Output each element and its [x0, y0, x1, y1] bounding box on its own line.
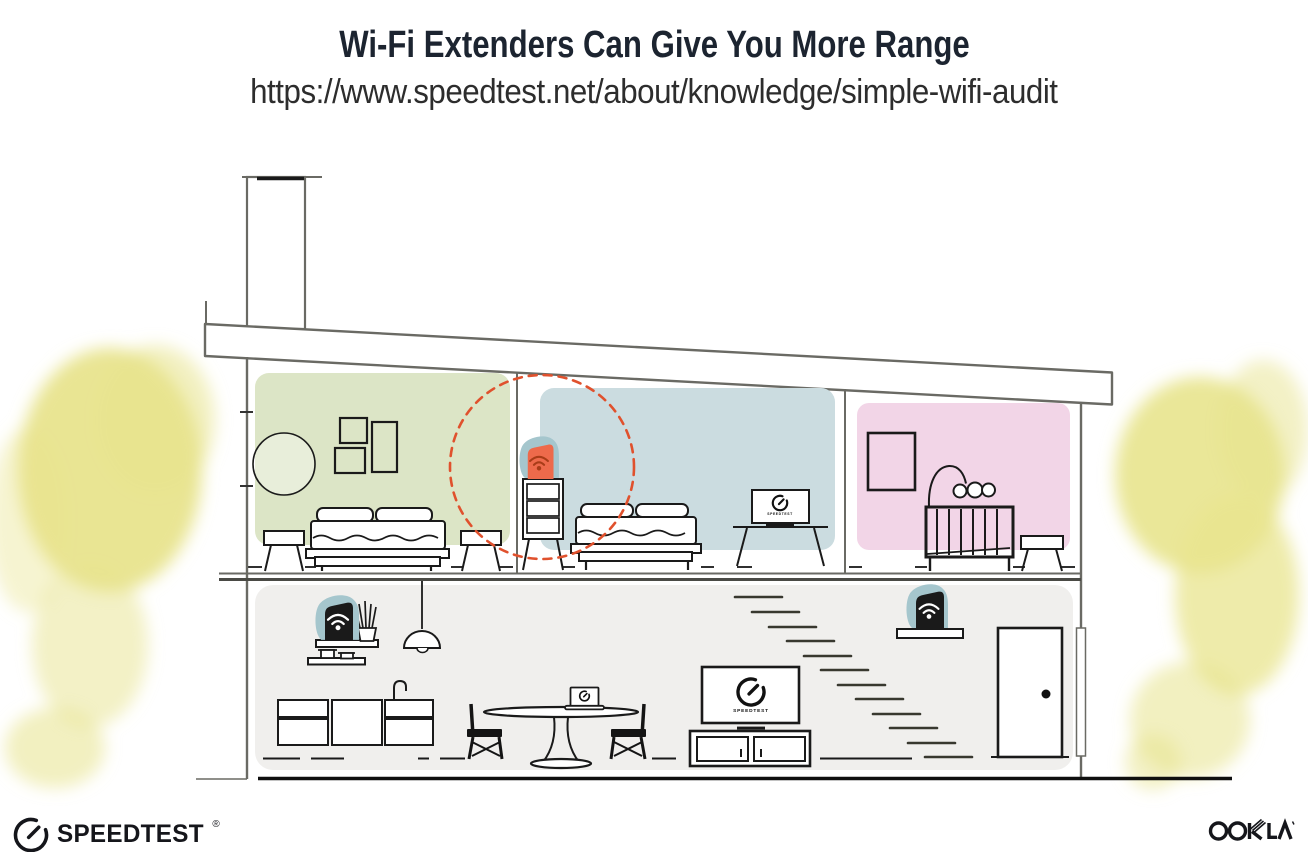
speedtest-logo-text: SPEEDTEST	[57, 820, 204, 849]
wifi-extender-upstairs	[520, 436, 559, 479]
stool	[1021, 536, 1063, 571]
hallway-shelf	[897, 629, 963, 638]
ookla-logo	[1208, 815, 1296, 850]
laptop	[565, 688, 604, 710]
dresser	[523, 479, 563, 570]
house-cross-section-illustration: SPEEDTEST	[0, 0, 1308, 861]
downspout	[1077, 628, 1086, 756]
wifi-router-main	[315, 595, 359, 640]
tv-bedroom: SPEEDTEST	[752, 490, 809, 526]
tv-screen-label: SPEEDTEST	[767, 512, 793, 516]
bed	[306, 508, 449, 571]
chimney	[242, 177, 322, 329]
tv-console	[690, 731, 810, 766]
speedtest-gauge-icon	[13, 816, 49, 852]
tv-screen-label: SPEEDTEST	[733, 708, 769, 714]
door	[991, 628, 1069, 757]
stool	[264, 531, 304, 571]
tv-living-room: SPEEDTEST	[702, 667, 799, 730]
registered-mark: ®	[212, 819, 219, 830]
tree-left	[0, 345, 215, 788]
door-knob	[1042, 690, 1051, 699]
speedtest-logo: SPEEDTEST ®	[13, 816, 220, 852]
wifi-extender-hallway	[906, 584, 948, 629]
bed	[571, 504, 701, 570]
round-mirror	[253, 433, 315, 495]
tree-right	[1115, 360, 1308, 790]
ookla-logo-glyphs	[1208, 815, 1296, 845]
